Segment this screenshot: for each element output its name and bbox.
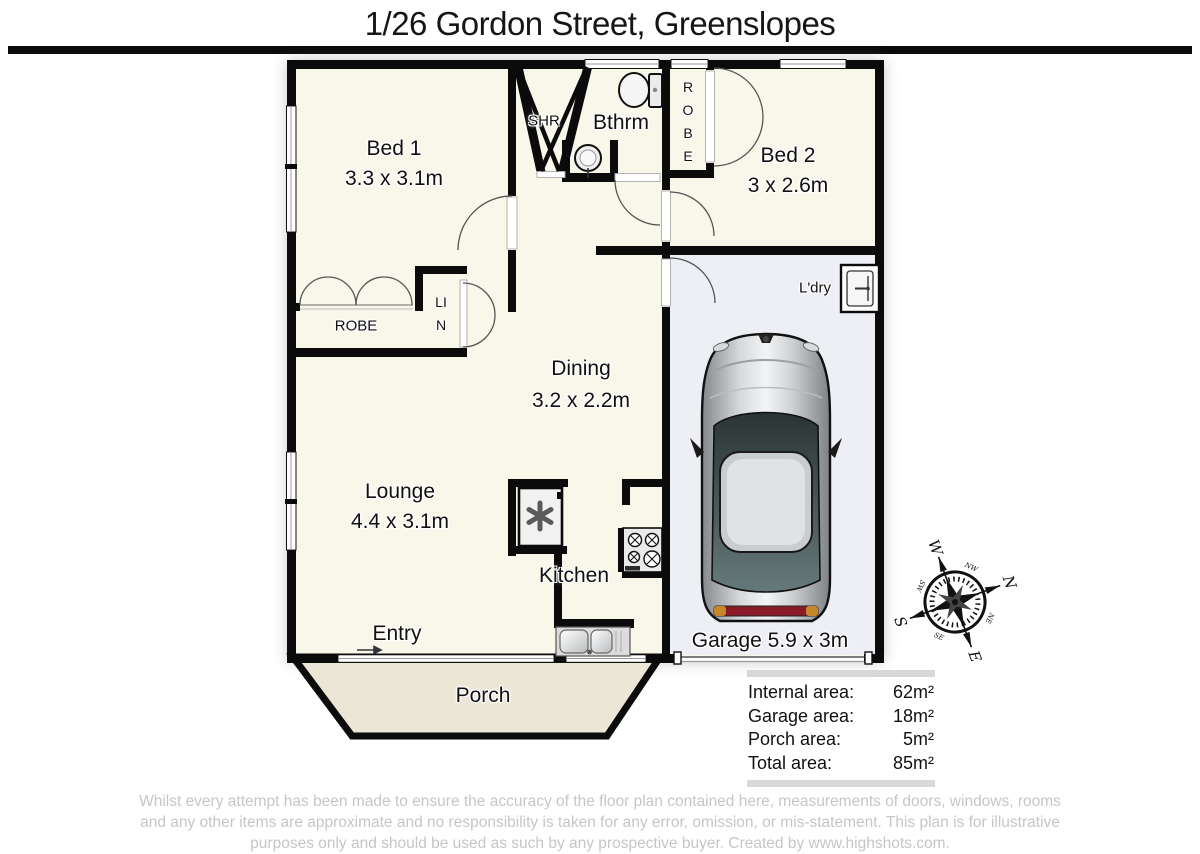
- area-summary-table: Internal area: 62m² Garage area: 18m² Po…: [747, 670, 935, 787]
- porch-floor: [293, 657, 660, 736]
- table-row: Internal area: 62m²: [748, 681, 934, 705]
- car-icon: [690, 334, 842, 621]
- compass-e-label: E: [964, 647, 985, 664]
- area-label: Garage area:: [748, 705, 854, 729]
- kitchen-sink-icon: [556, 627, 630, 656]
- compass-n-label: N: [998, 572, 1020, 592]
- area-value: 5m²: [903, 728, 934, 752]
- area-value: 62m²: [893, 681, 934, 705]
- fridge-icon: [519, 488, 562, 546]
- area-value: 85m²: [893, 752, 934, 776]
- compass-ne-label: NE: [984, 610, 996, 624]
- disclaimer-line: purposes only and should be used as such…: [0, 833, 1200, 854]
- disclaimer-line: Whilst every attempt has been made to en…: [0, 791, 1200, 812]
- compass-se-label: SE: [933, 631, 945, 642]
- area-value: 18m²: [893, 705, 934, 729]
- washing-machine-icon: [841, 265, 879, 312]
- disclaimer: Whilst every attempt has been made to en…: [0, 791, 1200, 854]
- compass-sw-label: SW: [914, 579, 927, 594]
- table-row: Garage area: 18m²: [748, 705, 934, 729]
- compass-s-label: S: [890, 614, 910, 630]
- table-bottom-bar: [747, 780, 935, 787]
- stove-icon: [618, 528, 662, 572]
- area-label: Total area:: [748, 752, 832, 776]
- compass-w-label: W: [924, 537, 947, 559]
- area-label: Porch area:: [748, 728, 841, 752]
- table-top-bar: [747, 670, 935, 677]
- compass-icon: N E S W NE NW SE SW: [870, 517, 1040, 684]
- compass-nw-label: NW: [963, 561, 980, 575]
- floor-plan-page: 1/26 Gordon Street, Greenslopes: [0, 0, 1200, 848]
- disclaimer-line: and any other items are approximate and …: [0, 812, 1200, 833]
- table-row: Total area: 85m²: [748, 752, 934, 776]
- toilet-icon: [619, 73, 662, 107]
- table-row: Porch area: 5m²: [748, 728, 934, 752]
- floor-plan-svg: N E S W NE NW SE SW: [0, 0, 1200, 848]
- area-label: Internal area:: [748, 681, 854, 705]
